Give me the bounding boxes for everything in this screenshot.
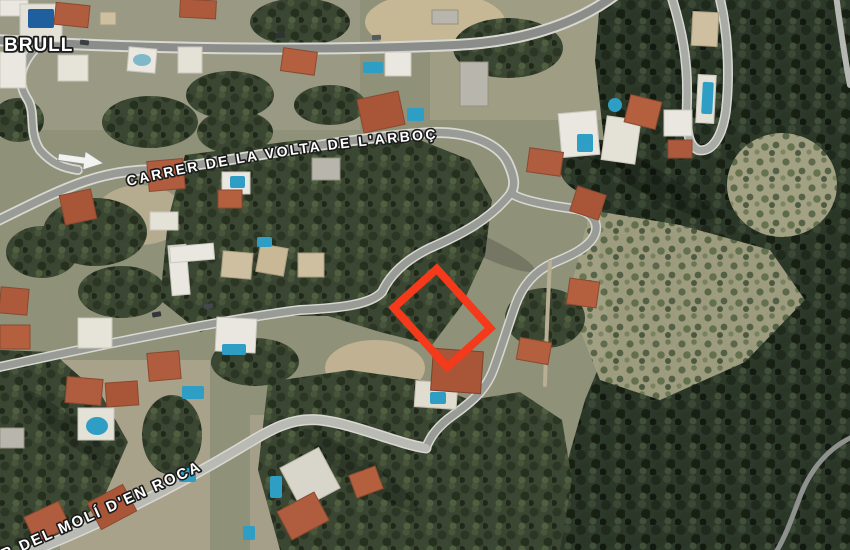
satellite-map[interactable]: BRULL CARRER DE LA VOLTA DE L'ARBOÇ CARR…	[0, 0, 850, 550]
street-label-brull: BRULL	[4, 35, 73, 56]
map-canvas[interactable]: BRULL CARRER DE LA VOLTA DE L'ARBOÇ CARR…	[0, 0, 850, 550]
